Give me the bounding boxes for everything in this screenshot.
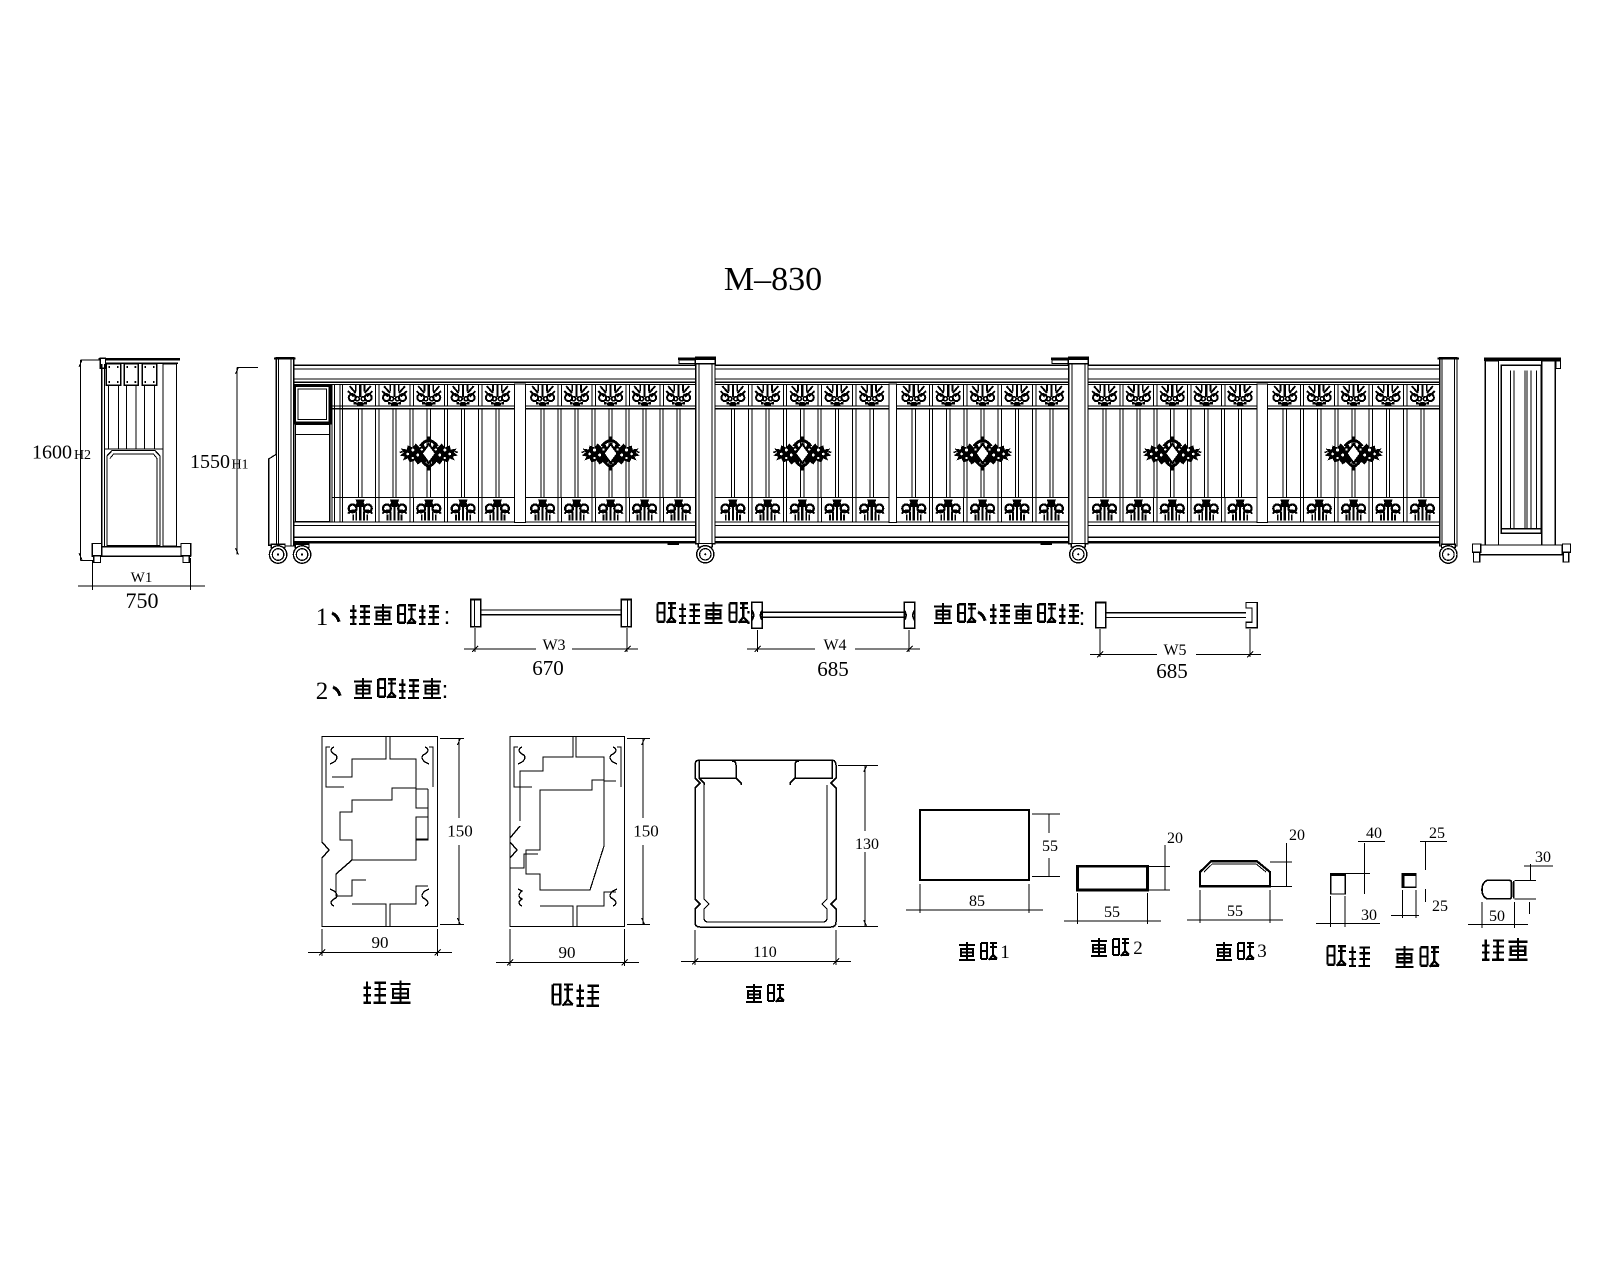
svg-text::: : bbox=[745, 603, 752, 630]
svg-text:130: 130 bbox=[855, 836, 879, 853]
svg-text:55: 55 bbox=[1227, 903, 1243, 920]
svg-text:W4: W4 bbox=[823, 637, 846, 654]
svg-text:685: 685 bbox=[1156, 659, 1188, 683]
svg-text:25: 25 bbox=[1429, 825, 1445, 842]
svg-text:150: 150 bbox=[447, 822, 473, 841]
svg-text:1: 1 bbox=[1000, 942, 1010, 963]
svg-text:1: 1 bbox=[316, 604, 329, 631]
svg-text:30: 30 bbox=[1361, 907, 1377, 924]
svg-text:55: 55 bbox=[1104, 904, 1120, 921]
svg-text:2: 2 bbox=[316, 678, 329, 705]
svg-text:3: 3 bbox=[1257, 941, 1267, 962]
svg-text::: : bbox=[442, 677, 449, 704]
svg-text:W5: W5 bbox=[1163, 642, 1186, 659]
svg-text:90: 90 bbox=[372, 933, 389, 952]
svg-text:50: 50 bbox=[1489, 908, 1505, 925]
svg-text:150: 150 bbox=[633, 822, 659, 841]
svg-text:25: 25 bbox=[1432, 898, 1448, 915]
svg-text:H2: H2 bbox=[74, 448, 91, 463]
svg-text:670: 670 bbox=[532, 656, 564, 680]
svg-text:1550: 1550 bbox=[190, 451, 230, 473]
svg-text::: : bbox=[1079, 604, 1086, 631]
svg-text:30: 30 bbox=[1535, 849, 1551, 866]
svg-text:20: 20 bbox=[1289, 827, 1305, 844]
svg-text:685: 685 bbox=[817, 657, 849, 681]
svg-text:90: 90 bbox=[559, 943, 576, 962]
svg-text:M–830: M–830 bbox=[724, 261, 822, 298]
svg-text:20: 20 bbox=[1167, 830, 1183, 847]
svg-text:1600: 1600 bbox=[32, 442, 72, 464]
svg-text:110: 110 bbox=[753, 944, 776, 961]
svg-text:85: 85 bbox=[969, 893, 985, 910]
svg-text:40: 40 bbox=[1366, 825, 1382, 842]
svg-text::: : bbox=[444, 603, 451, 630]
svg-text:W3: W3 bbox=[542, 637, 565, 654]
svg-text:W1: W1 bbox=[131, 570, 153, 586]
svg-text:55: 55 bbox=[1042, 838, 1058, 855]
svg-text:H1: H1 bbox=[231, 458, 248, 473]
svg-text:750: 750 bbox=[126, 588, 159, 613]
svg-text:2: 2 bbox=[1133, 938, 1143, 959]
